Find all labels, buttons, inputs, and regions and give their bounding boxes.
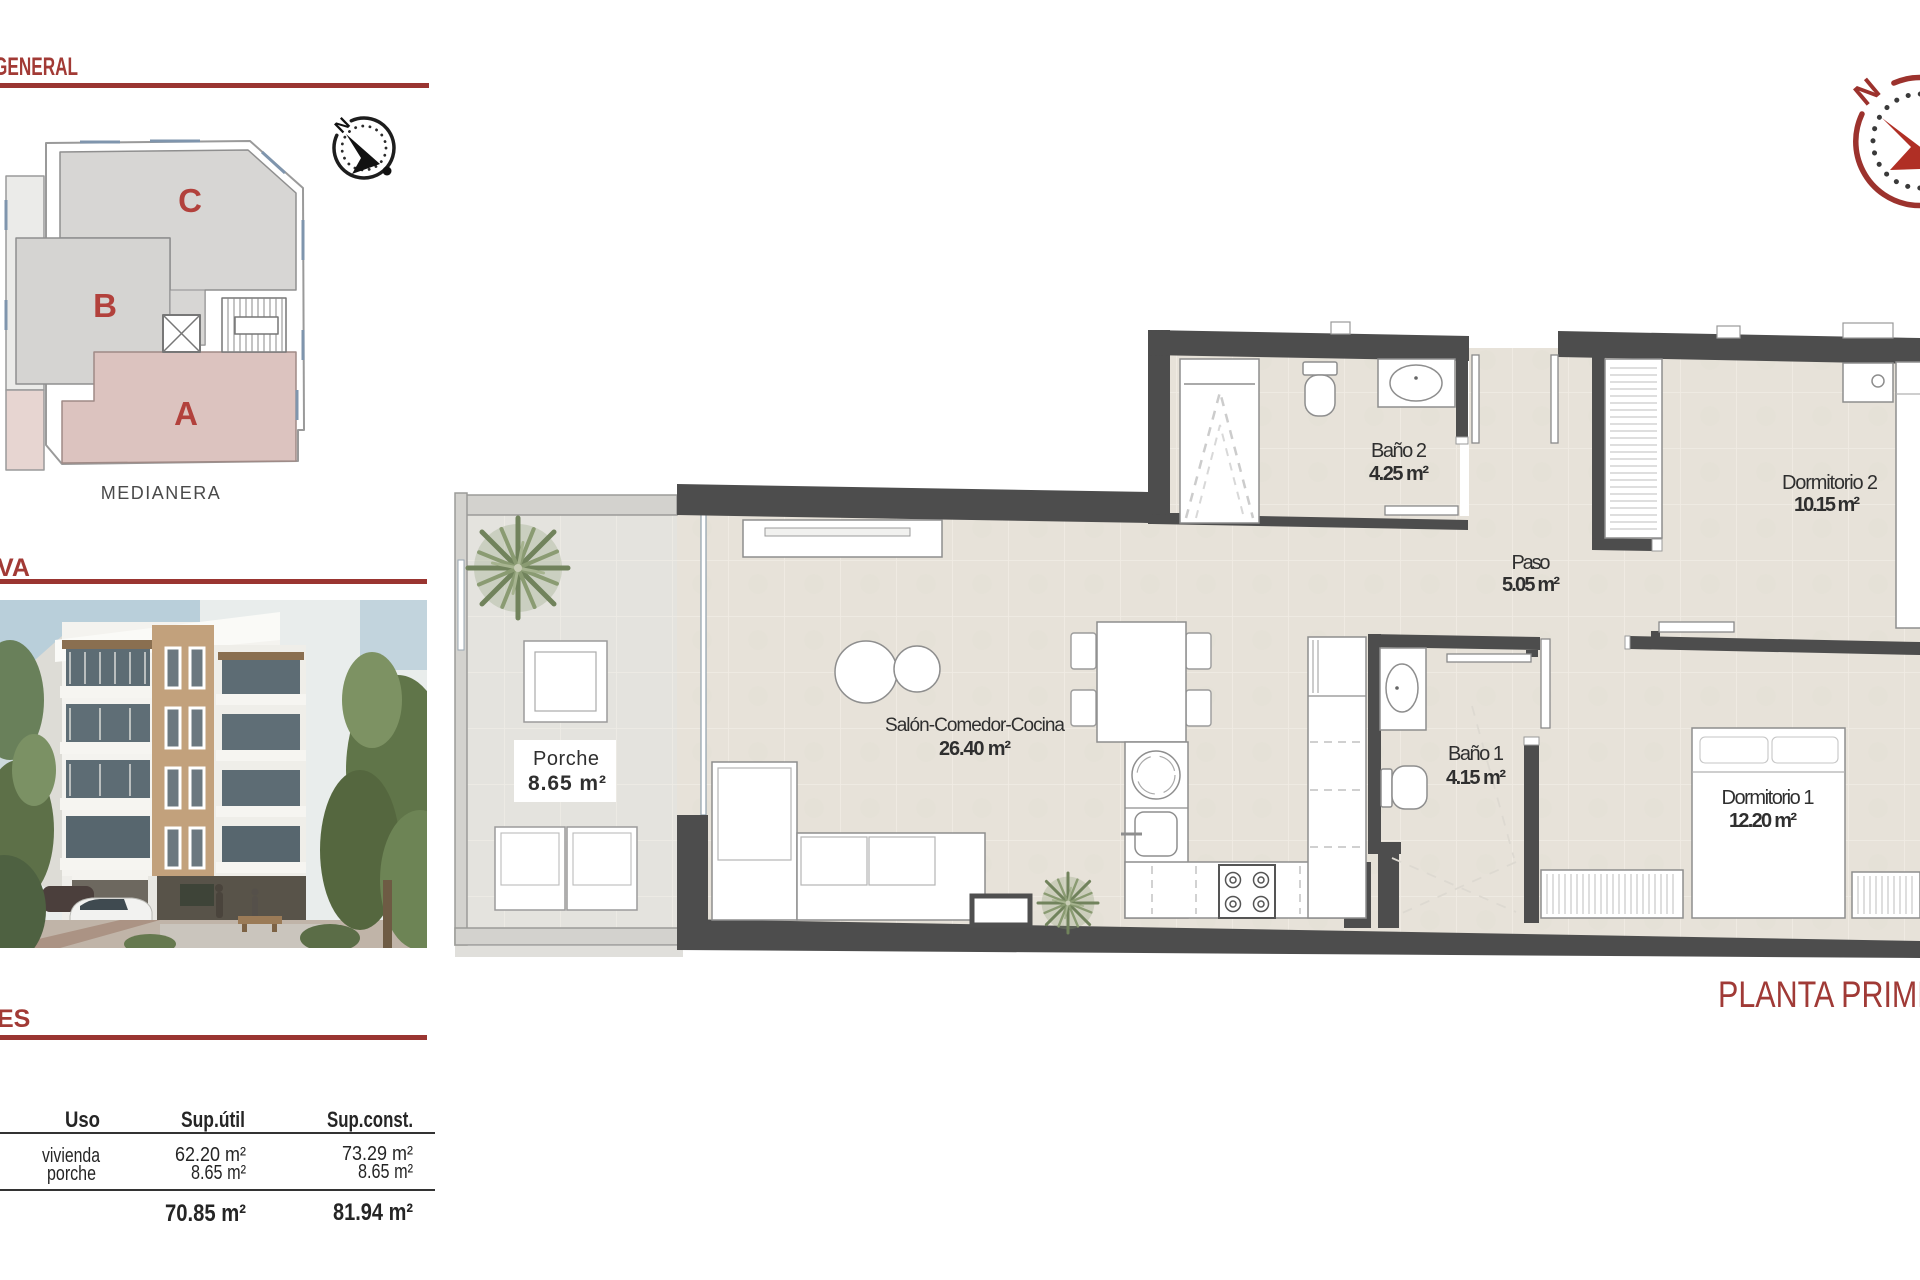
svg-text:PLANTA PRIMERA: PLANTA PRIMERA [1718, 974, 1920, 1015]
svg-text:B: B [93, 287, 117, 324]
svg-text:4.25 m²: 4.25 m² [1369, 463, 1429, 485]
svg-text:70.85 m²: 70.85 m² [165, 1200, 246, 1227]
svg-text:Dormitorio 1: Dormitorio 1 [1722, 787, 1815, 809]
svg-text:Paso: Paso [1512, 552, 1551, 574]
svg-text:Dormitorio 2: Dormitorio 2 [1782, 472, 1878, 494]
svg-text:ES: ES [0, 1005, 30, 1033]
svg-text:GENERAL: GENERAL [0, 53, 78, 81]
svg-text:C: C [178, 182, 202, 219]
svg-text:8.65 m²: 8.65 m² [528, 772, 606, 795]
svg-text:VA: VA [0, 554, 30, 582]
svg-text:Sup.útil: Sup.útil [181, 1107, 245, 1132]
svg-text:Porche: Porche [533, 748, 599, 770]
svg-text:8.65 m²: 8.65 m² [191, 1162, 246, 1184]
svg-text:12.20 m²: 12.20 m² [1729, 810, 1797, 832]
svg-text:8.65 m²: 8.65 m² [358, 1161, 413, 1183]
svg-text:4.15 m²: 4.15 m² [1446, 767, 1506, 789]
svg-text:Baño 2: Baño 2 [1371, 440, 1427, 462]
svg-text:Sup.const.: Sup.const. [327, 1107, 413, 1132]
svg-text:Uso: Uso [65, 1107, 100, 1132]
svg-text:26.40 m²: 26.40 m² [939, 738, 1011, 760]
svg-text:10.15 m²: 10.15 m² [1794, 494, 1860, 516]
svg-text:porche: porche [47, 1163, 96, 1185]
svg-text:81.94 m²: 81.94 m² [333, 1199, 413, 1226]
svg-text:A: A [174, 395, 198, 432]
svg-text:Baño 1: Baño 1 [1448, 743, 1504, 765]
svg-text:5.05 m²: 5.05 m² [1502, 574, 1560, 596]
svg-text:MEDIANERA: MEDIANERA [101, 483, 222, 503]
svg-text:Salón-Comedor-Cocina: Salón-Comedor-Cocina [885, 715, 1065, 736]
